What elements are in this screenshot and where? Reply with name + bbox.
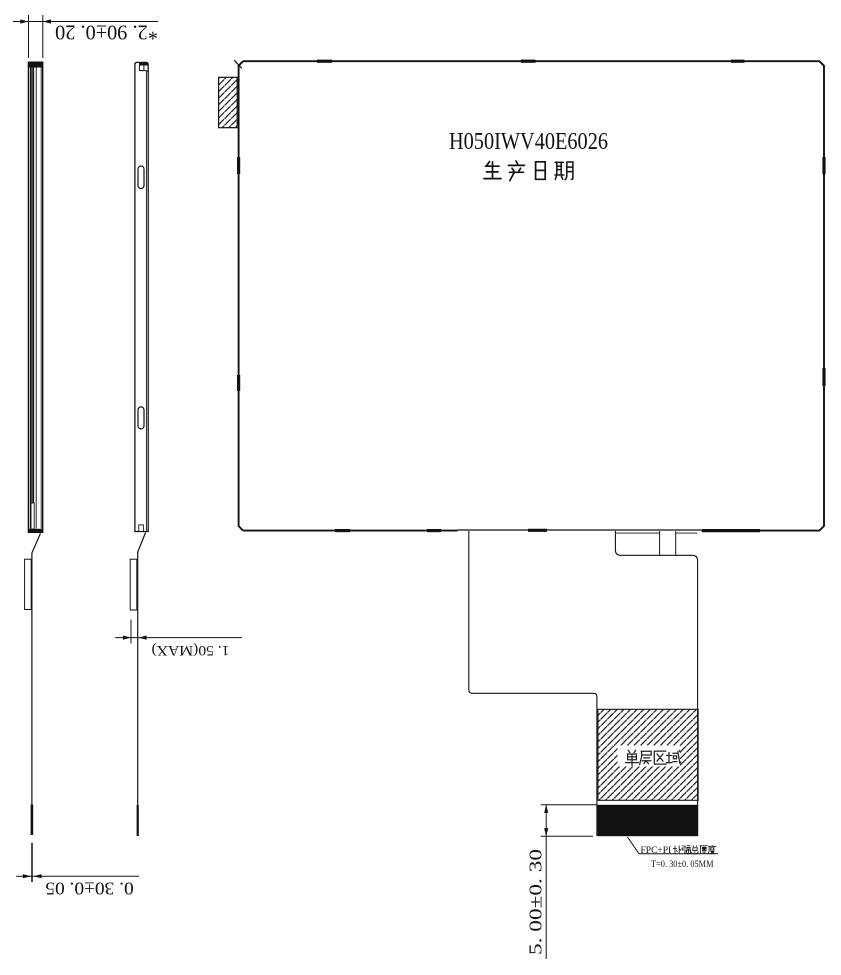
svg-text:1. 50(MAX): 1. 50(MAX) — [151, 642, 229, 658]
svg-text:5. 00±0. 30: 5. 00±0. 30 — [526, 849, 546, 955]
svg-text:*2. 90±0. 20: *2. 90±0. 20 — [55, 21, 158, 45]
svg-text:FPC+PI: FPC+PI — [641, 846, 672, 856]
svg-text:H050IWV40E6026: H050IWV40E6026 — [449, 128, 608, 155]
svg-text:0. 30±0. 05: 0. 30±0. 05 — [45, 879, 134, 899]
svg-text:T=0. 30±0. 05MM: T=0. 30±0. 05MM — [651, 860, 714, 870]
